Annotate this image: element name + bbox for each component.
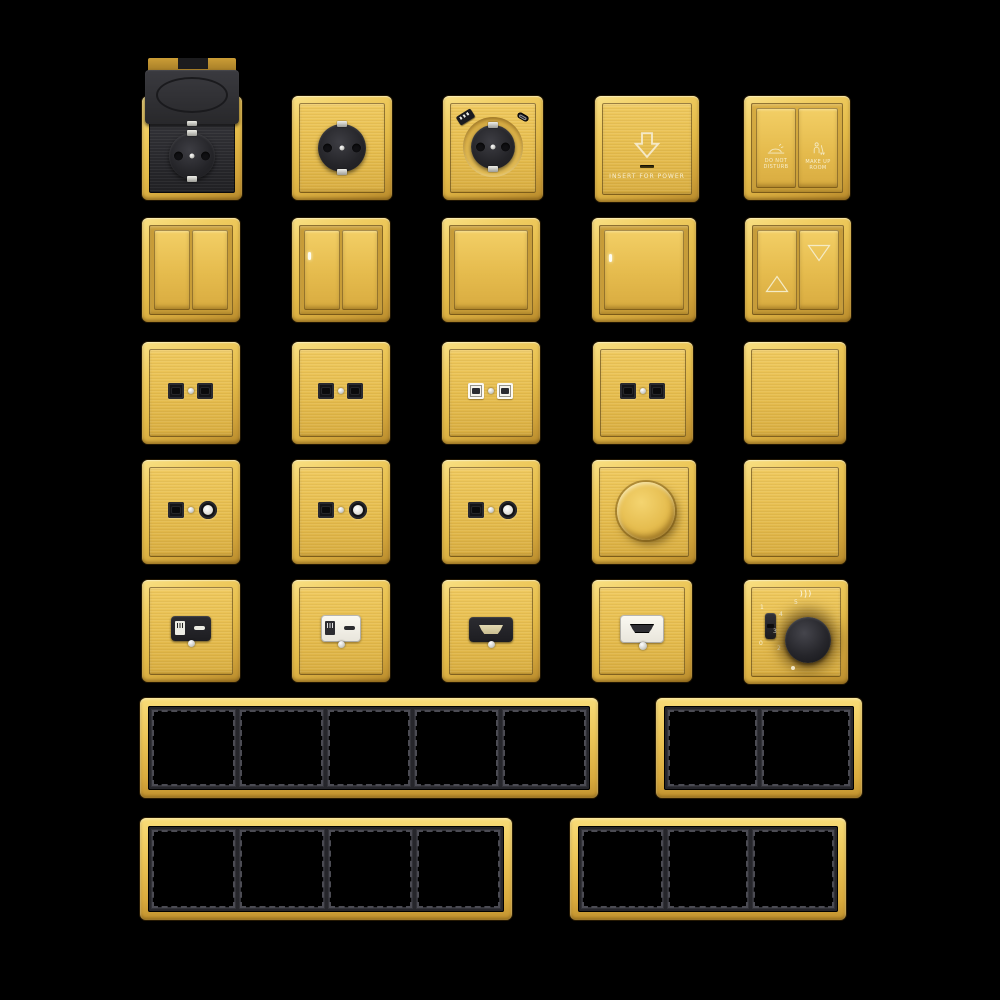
speed-5-label: 5 [794,599,798,606]
flip-lid-hinge-slot [178,58,208,69]
usb-module [321,615,361,642]
socket-recess [463,117,523,177]
socket-face [149,349,233,437]
speed-3-label: 3 [773,628,777,635]
center-screw [488,388,494,394]
earth-clip-bottom [187,176,197,182]
up-triangle-icon [764,274,790,294]
switch-face [449,225,533,315]
bottom-screw [488,641,495,648]
earth-clip-bottom [488,166,498,172]
product-data-socket-double-white [442,342,540,444]
rocker [454,230,528,310]
center-screw [338,507,344,513]
hdmi-port [630,624,654,633]
frame-opening-3 [327,709,412,787]
frame-4-gang [140,818,512,920]
product-switch-2gang [142,218,240,322]
data-jack-left [318,383,334,399]
frame-opening-1 [667,709,758,787]
center-screw [488,507,494,513]
dimmer-face [599,467,689,557]
pin-hole-left [174,152,183,161]
dnd-label-line2: DISTURB [764,164,789,170]
frame-opening-2 [667,829,750,909]
product-switch-2gang-indicator [292,218,390,322]
product-switch-1gang-indicator [592,218,696,322]
pin-hole-right [201,152,210,161]
mur-label: MAKE UP ROOM [805,159,830,171]
do-not-disturb-rocker: DO NOT DISTURB [756,108,796,188]
usb-c-port-icon [516,111,529,122]
socket-face [600,349,686,437]
frame-opening-2 [761,709,852,787]
charger-face [149,587,233,675]
data-jack-left [620,383,636,399]
data-jack-right [197,383,213,399]
bottom-screw [639,642,647,650]
product-rotary-dimmer [592,460,696,564]
frame-interior [148,706,590,790]
frame-opening-5 [502,709,587,787]
frame-3-gang [570,818,846,920]
product-data-socket-double-black-3 [593,342,693,444]
flip-lid-latch [187,121,197,126]
frame-opening-3 [328,829,413,909]
frame-interior [664,706,854,790]
hdmi-face [449,587,533,675]
product-schuko-socket-usb [443,96,543,200]
socket-face [299,467,383,557]
product-schuko-socket-flip-cover [142,96,242,200]
down-triangle-icon [806,243,832,263]
data-jack-left [168,383,184,399]
do-not-disturb-icon [766,142,786,156]
data-jack-right [649,383,665,399]
schuko-outlet [318,124,366,172]
rocker-right [192,230,228,310]
product-switch-1gang [442,218,540,322]
off-label: 0 [759,640,763,647]
on-label: 1 [760,604,764,611]
product-blank-plate-1 [744,342,846,444]
rocker-right [342,230,378,310]
socket-face [450,103,536,193]
frame-opening-2 [239,829,324,909]
earth-clip-top [488,122,498,128]
usb-a-port [175,621,185,635]
schuko-outlet [471,125,515,169]
mur-label-line2: ROOM [805,165,830,171]
schuko-outlet [169,133,215,179]
center-screw [188,388,194,394]
center-screw [640,388,646,394]
coax-connector [349,501,367,519]
pin-hole-left [476,143,485,152]
hdmi-face [599,587,685,675]
hdmi-module [620,615,664,643]
blank-face [751,467,839,557]
center-screw [190,154,195,159]
center-screw [188,507,194,513]
pin-hole-right [501,143,510,152]
speed-4-label: 4 [779,611,783,618]
indicator-led [609,254,612,262]
frame-opening-1 [581,829,664,909]
speed-knob [785,617,831,663]
indicator-led [308,252,311,260]
blank-face [751,349,839,437]
flip-lid [145,70,239,124]
frame-opening-1 [151,709,236,787]
product-hdmi-socket-white [592,580,692,682]
usb-c-port [194,626,205,630]
curtain-up-rocker [757,230,797,310]
usb-module [171,616,211,641]
frame-opening-4 [416,829,501,909]
center-screw [491,145,496,150]
fan-icon [798,588,813,599]
product-hotel-service-switch: DO NOT DISTURB MAKE UP ROOM [744,96,850,200]
data-jack-right [497,383,513,399]
frame-opening-3 [752,829,835,909]
center-screw [338,388,344,394]
frame-2-gang [656,698,862,798]
data-jack [468,502,484,518]
frame-opening-2 [239,709,324,787]
usb-a-port [325,621,335,635]
product-schuko-socket [292,96,392,200]
frame-5-gang [140,698,598,798]
switch-face [149,225,233,315]
data-jack-right [347,383,363,399]
flip-lid-oval [156,77,228,113]
socket-face [299,103,385,193]
earth-clip-top [337,121,347,127]
coax-connector [499,501,517,519]
make-up-room-icon [811,142,826,157]
charger-face [299,587,383,675]
data-jack-left [468,383,484,399]
pin-hole-left [323,144,332,153]
rocker-left [304,230,340,310]
socket-face [449,349,533,437]
product-tv-data-socket-2 [292,460,390,564]
key-card-face: INSERT FOR POWER [602,103,692,195]
hdmi-port [479,625,503,634]
switch-face [599,225,689,315]
bottom-screw [338,641,345,648]
product-usb-charger-white [292,580,390,682]
controller-face: 1 0 5 4 3 2 [751,587,841,677]
product-key-card-power-holder: INSERT FOR POWER [595,96,699,202]
product-data-socket-double-black-2 [292,342,390,444]
data-jack [318,502,334,518]
product-blank-plate-2 [744,460,846,564]
switch-face: DO NOT DISTURB MAKE UP ROOM [751,103,843,193]
insert-for-power-label: INSERT FOR POWER [602,173,692,180]
make-up-room-rocker: MAKE UP ROOM [798,108,838,188]
data-jack [168,502,184,518]
frame-opening-4 [414,709,499,787]
mur-label-line1: MAKE UP [805,159,830,165]
usb-a-port-icon [456,108,476,125]
earth-clip-bottom [337,169,347,175]
socket-face [449,467,533,557]
frame-interior [148,826,504,912]
pin-hole-right [352,144,361,153]
rocker-left [154,230,190,310]
product-data-socket-double-black-1 [142,342,240,444]
curtain-down-rocker [799,230,839,310]
coax-connector [199,501,217,519]
product-fan-speed-controller: 1 0 5 4 3 2 [744,580,848,684]
catalog-canvas: INSERT FOR POWER DO NOT DISTURB [0,0,1000,1000]
insert-card-arrow-icon [632,131,662,159]
switch-face [299,225,383,315]
product-tv-data-socket-3 [442,460,540,564]
rocker [604,230,684,310]
socket-face [149,467,233,557]
product-usb-charger-black [142,580,240,682]
speed-2-label: 2 [777,645,781,652]
dimmer-knob [617,482,675,540]
hdmi-module [469,617,513,642]
dnd-label: DO NOT DISTURB [764,158,789,170]
card-slot [640,165,654,168]
power-slider [765,613,776,639]
product-tv-data-socket-1 [142,460,240,564]
frame-interior [578,826,838,912]
product-curtain-switch [745,218,851,322]
knob-pointer-dot [791,666,795,670]
frame-opening-1 [151,829,236,909]
product-hdmi-socket-black [442,580,540,682]
earth-clip-top [187,130,197,136]
center-screw [340,146,345,151]
socket-face [299,349,383,437]
bottom-screw [188,640,195,647]
switch-face [752,225,844,315]
usb-c-port [344,626,355,630]
